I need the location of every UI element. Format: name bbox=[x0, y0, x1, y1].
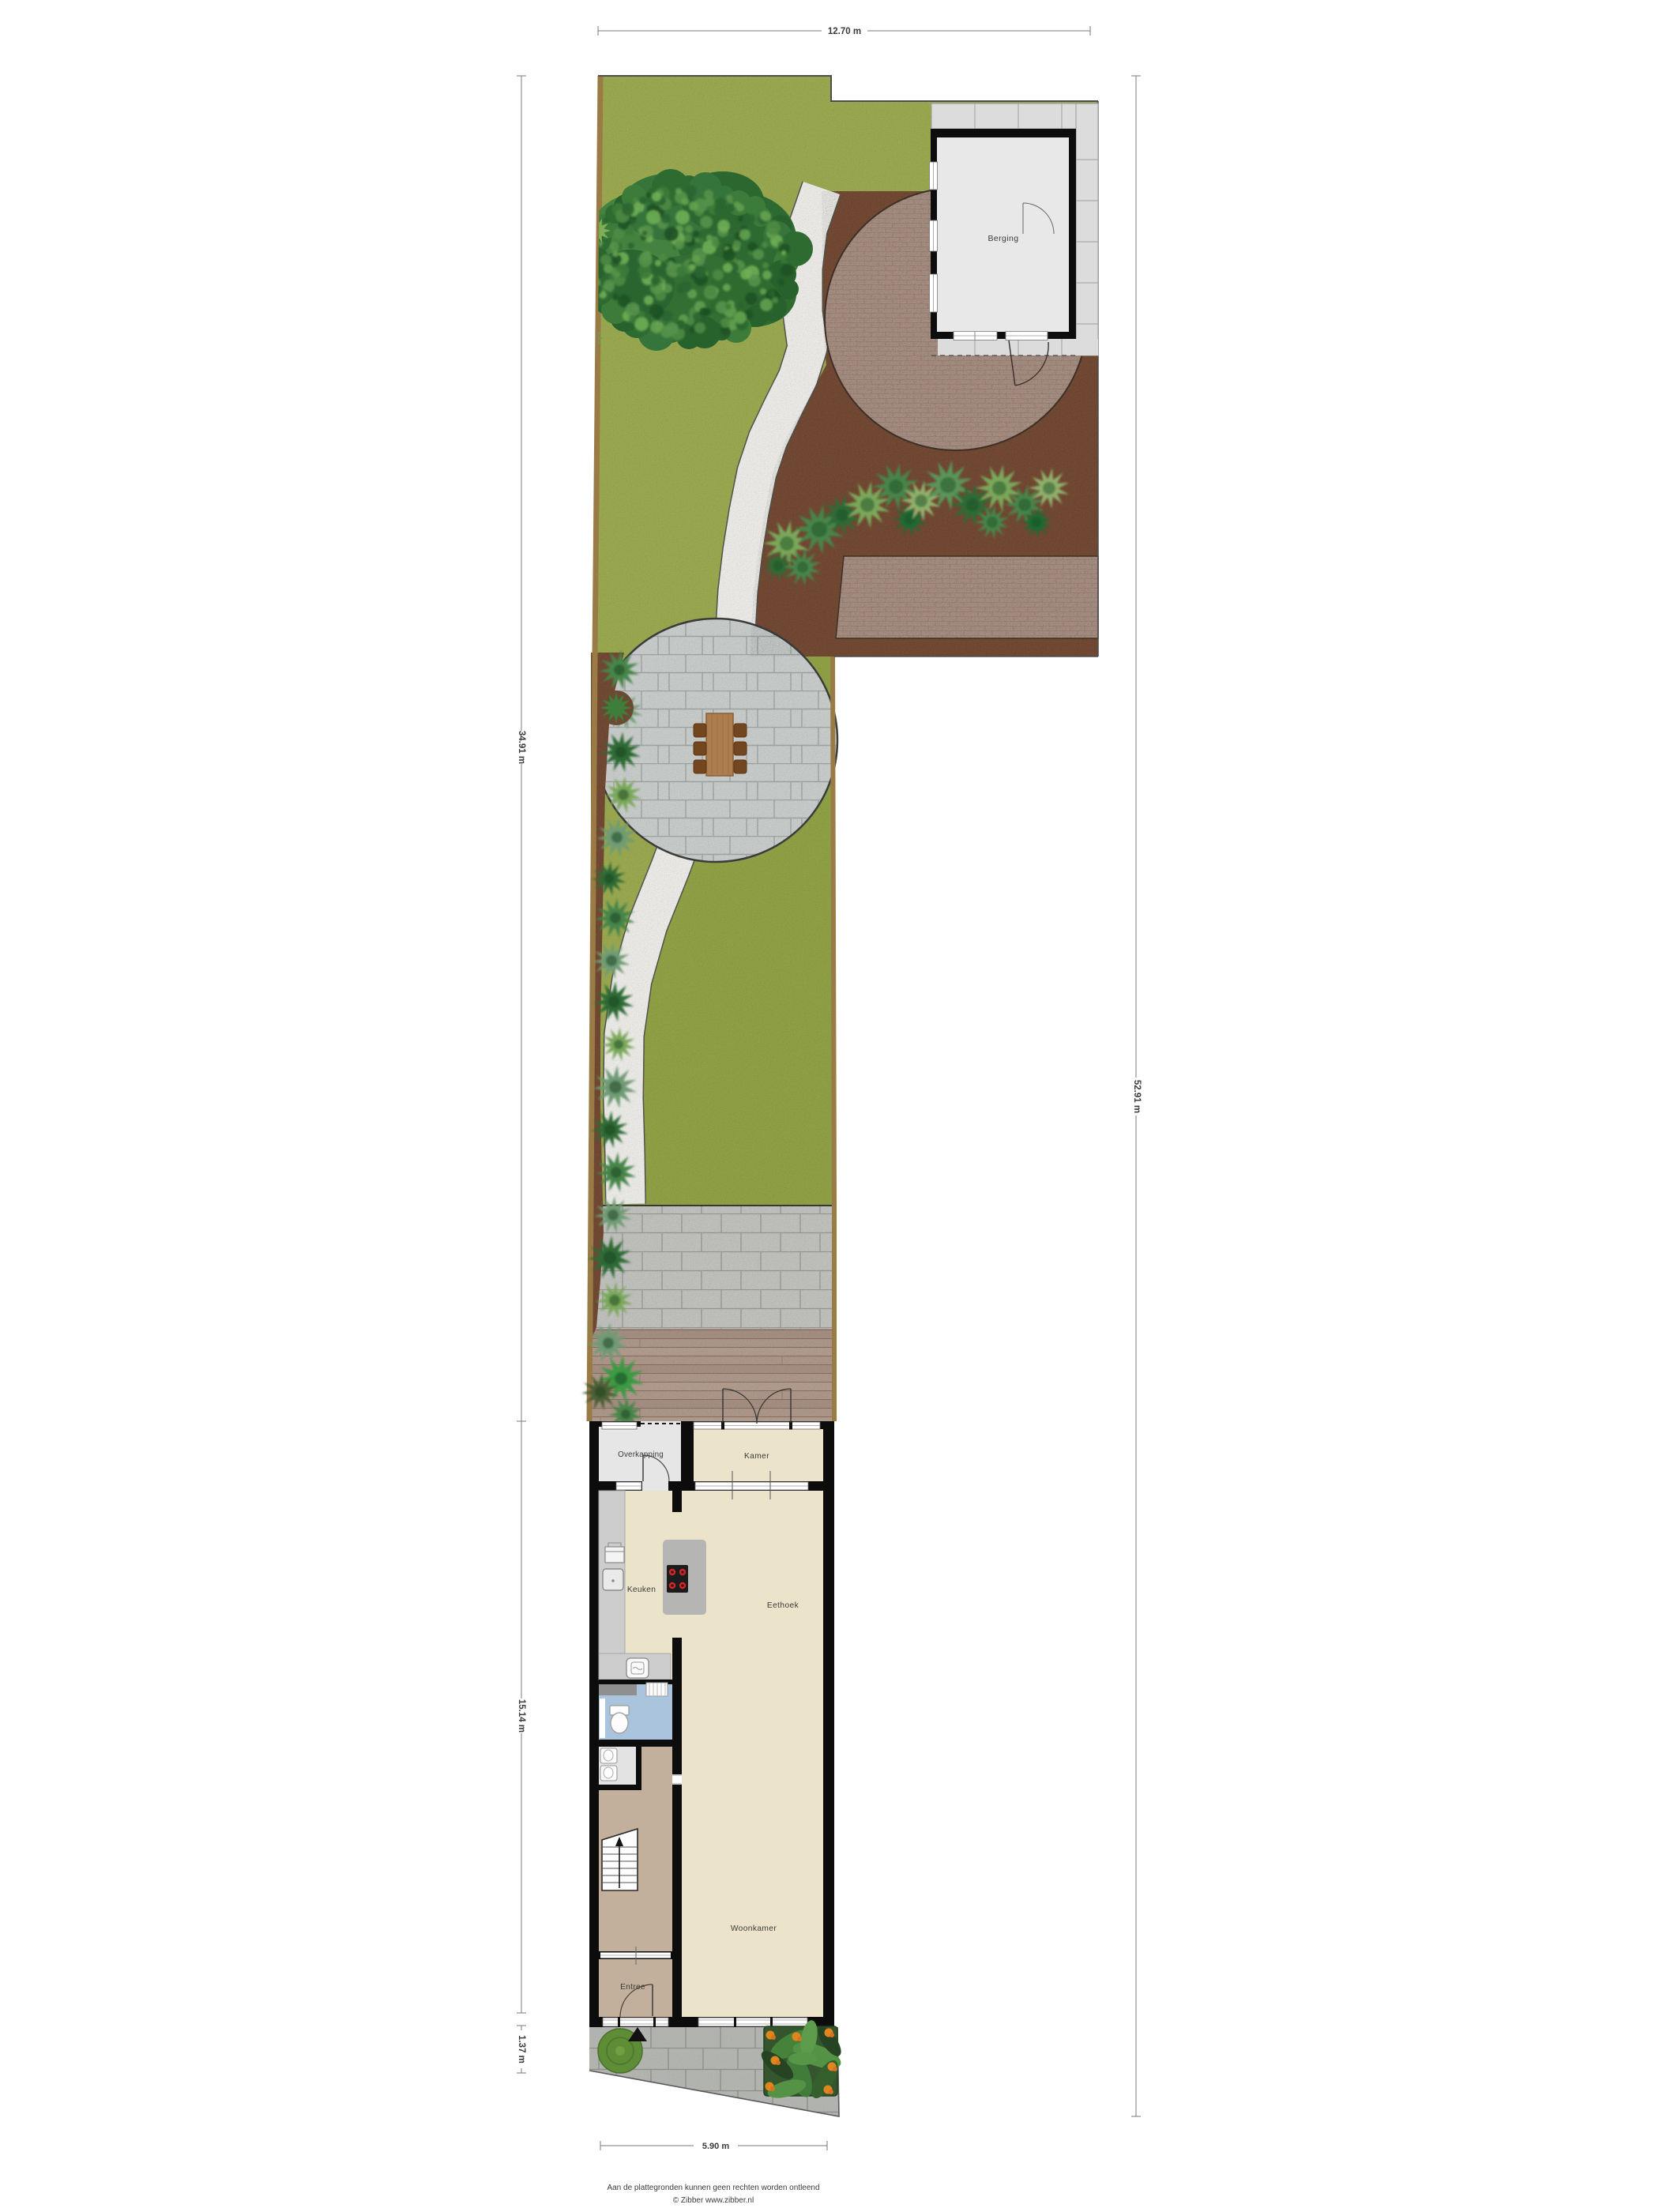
svg-text:1.37 m: 1.37 m bbox=[517, 2035, 526, 2063]
svg-text:Aan de plattegronden kunnen ge: Aan de plattegronden kunnen geen rechten… bbox=[607, 2184, 819, 2192]
svg-text:12.70 m: 12.70 m bbox=[828, 27, 861, 36]
svg-text:Woonkamer: Woonkamer bbox=[731, 1924, 777, 1933]
svg-text:15.14 m: 15.14 m bbox=[517, 1699, 526, 1732]
svg-text:52.91 m: 52.91 m bbox=[1132, 1080, 1142, 1113]
svg-text:Berging: Berging bbox=[988, 234, 1019, 243]
svg-text:Keuken: Keuken bbox=[627, 1586, 656, 1594]
svg-text:5.90 m: 5.90 m bbox=[702, 2142, 729, 2151]
svg-text:Entree: Entree bbox=[620, 1983, 645, 1992]
svg-text:Eethoek: Eethoek bbox=[767, 1601, 799, 1610]
svg-text:Overkapping: Overkapping bbox=[618, 1450, 664, 1459]
svg-text:© Zibber www.zibber.nl: © Zibber www.zibber.nl bbox=[673, 2196, 754, 2205]
svg-text:34.91 m: 34.91 m bbox=[517, 731, 526, 764]
svg-text:Kamer: Kamer bbox=[744, 1452, 769, 1461]
